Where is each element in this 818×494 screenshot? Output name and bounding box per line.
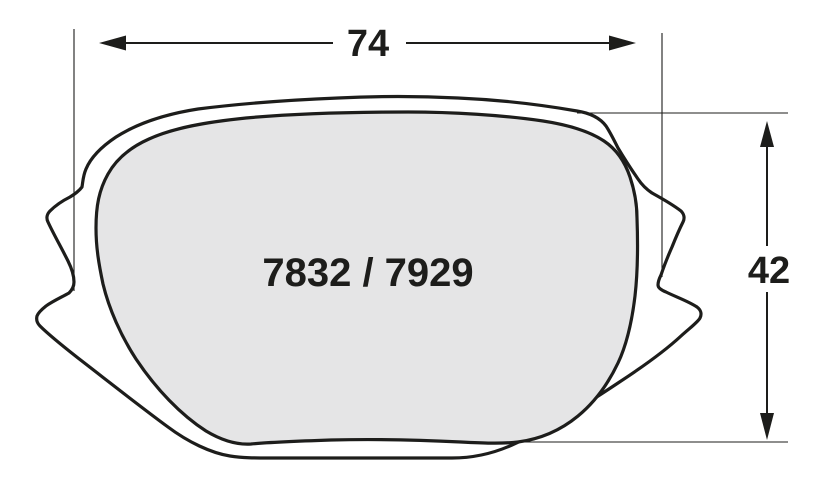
brake-pad-technical-drawing: 74 42 7832 / 7929 <box>0 0 818 494</box>
width-dimension-label: 74 <box>347 23 389 65</box>
part-number-label: 7832 / 7929 <box>262 251 473 295</box>
height-arrowhead-bottom <box>760 413 774 440</box>
height-dimension-label: 42 <box>748 250 790 292</box>
width-arrowhead-right <box>609 36 636 51</box>
drawing-svg: 74 42 7832 / 7929 <box>0 0 818 494</box>
height-arrowhead-top <box>760 121 774 147</box>
width-arrowhead-left <box>99 36 126 51</box>
